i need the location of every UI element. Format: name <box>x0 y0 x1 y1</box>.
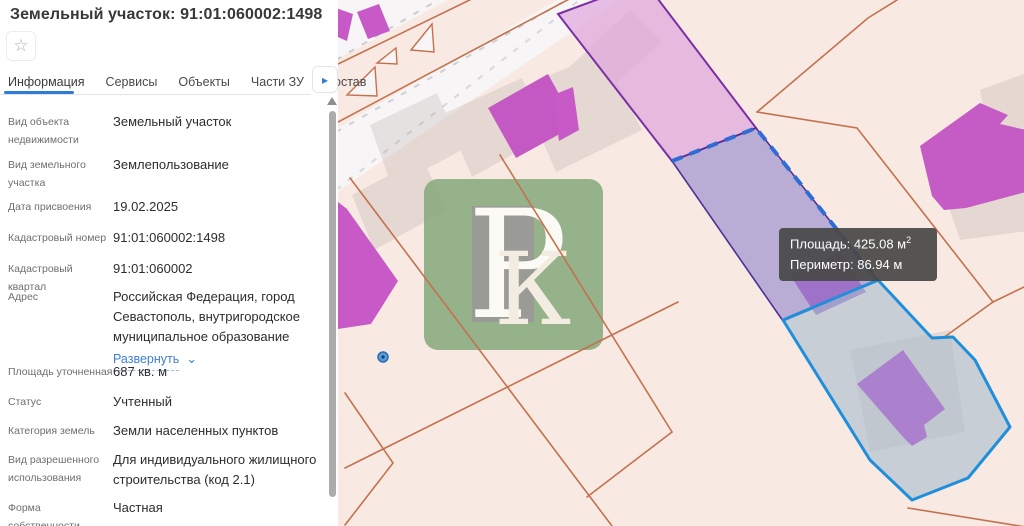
field-value: Землепользование <box>113 155 325 193</box>
field-row: Форма собственности Частная <box>8 498 330 526</box>
cadastral-map-app: Р К <box>0 0 1024 526</box>
field-label: Статус <box>8 392 113 412</box>
field-value: Земли населенных пунктов <box>113 421 325 441</box>
field-row: Категория земель Земли населенных пункто… <box>8 421 330 441</box>
field-row: Вид разрешенного использования Для индив… <box>8 450 330 490</box>
field-value: Частная <box>113 498 325 526</box>
field-label: Форма собственности <box>8 498 113 526</box>
tab-services[interactable]: Сервисы <box>106 75 158 89</box>
field-row-address: Адрес Российская Федерация, город Севаст… <box>8 287 330 371</box>
more-tabs-button[interactable]: ▸ <box>312 66 338 93</box>
favorite-button[interactable]: ☆ <box>6 31 36 61</box>
panel-scrollbar[interactable] <box>329 111 336 497</box>
field-row: Вид объекта недвижимости Земельный участ… <box>8 112 330 150</box>
field-value: Земельный участок <box>113 112 325 150</box>
field-label: Вид разрешенного использования <box>8 450 113 490</box>
field-row: Кадастровый номер 91:01:060002:1498 <box>8 228 330 248</box>
field-value: Для индивидуального жилищного строительс… <box>113 450 325 490</box>
star-icon: ☆ <box>13 36 28 56</box>
pkk-watermark-logo: Р К <box>424 179 603 353</box>
field-label: Дата присвоения <box>8 197 113 217</box>
tab-objects[interactable]: Объекты <box>178 75 230 89</box>
tooltip-perimeter-line: Периметр: 86.94 м <box>790 255 926 276</box>
field-row: Вид земельного участка Землепользование <box>8 155 330 193</box>
field-row: Статус Учтенный <box>8 392 330 412</box>
tab-information[interactable]: Информация <box>8 75 85 89</box>
tab-parcel-parts[interactable]: Части ЗУ <box>251 75 304 89</box>
area-superscript: 2 <box>906 235 911 245</box>
arrow-right-icon: ▸ <box>322 73 328 87</box>
field-label: Адрес <box>8 287 113 371</box>
field-label: Вид земельного участка <box>8 155 113 193</box>
scrollbar-up-arrow[interactable] <box>327 97 337 105</box>
field-value: 19.02.2025 <box>113 197 325 217</box>
field-value: 687 кв. м <box>113 362 325 382</box>
field-label: Кадастровый номер <box>8 228 113 248</box>
watermark-letter-k: К <box>494 231 571 348</box>
measurement-tooltip: Площадь: 425.08 м2 Периметр: 86.94 м <box>779 228 937 281</box>
field-row: Площадь уточненная 687 кв. м <box>8 362 330 382</box>
map-canvas[interactable]: Р К <box>338 0 1024 526</box>
field-label: Категория земель <box>8 421 113 441</box>
tabs-separator <box>0 94 311 95</box>
field-value: Российская Федерация, город Севастополь,… <box>113 289 300 344</box>
field-value: Учтенный <box>113 392 325 412</box>
tooltip-area-line: Площадь: 425.08 м2 <box>790 233 926 255</box>
page-title: Земельный участок: 91:01:060002:1498 <box>10 6 330 24</box>
field-row: Дата присвоения 19.02.2025 <box>8 197 330 217</box>
field-label: Площадь уточненная <box>8 362 113 382</box>
field-value: 91:01:060002:1498 <box>113 228 325 248</box>
field-label: Вид объекта недвижимости <box>8 112 113 150</box>
point-marker[interactable] <box>378 352 388 362</box>
parcel-info-panel: Земельный участок: 91:01:060002:1498 ☆ И… <box>0 0 338 526</box>
